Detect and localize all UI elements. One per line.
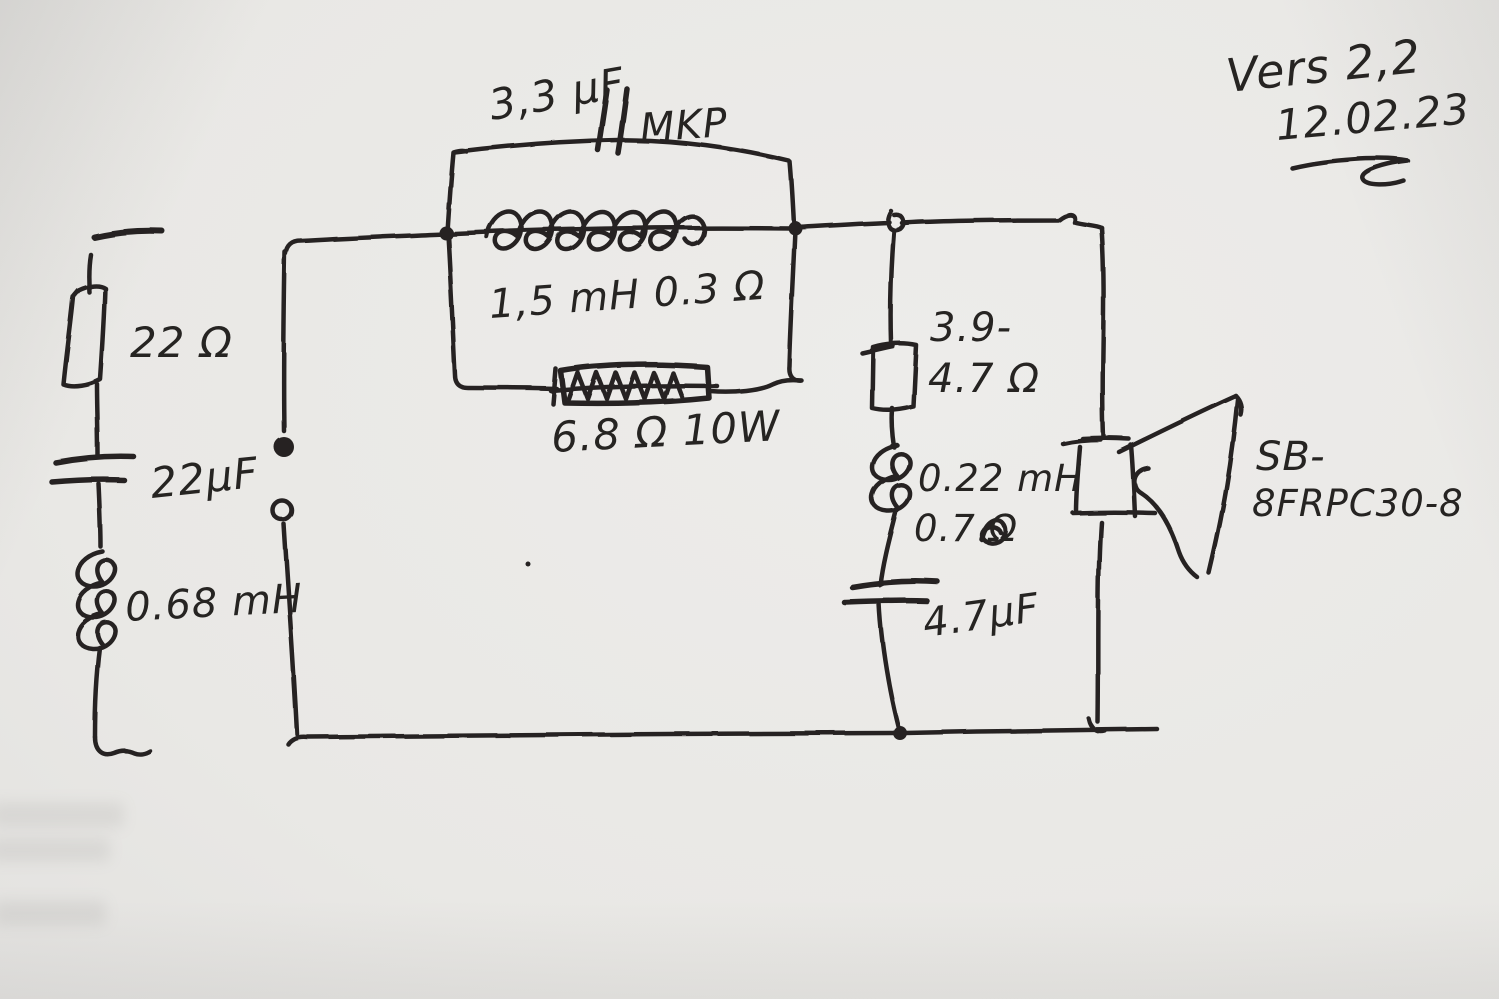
speaker-cone [1134,468,1197,577]
top-rail-wire [797,222,889,227]
speaker-box [1083,438,1129,439]
top-rail-wire [286,234,444,254]
schematic-svg: Vers 2,2 12.02.23 3,3 µF MKP 1,5 mH 0.3 … [0,0,1499,999]
speaker-wire [1102,228,1104,437]
capacitor-type-label: MKP [638,100,729,152]
series-inductor-coil [487,212,704,249]
shunt-wire [879,603,899,730]
shunt-capacitor-symbol [852,581,938,587]
notch-bottom-hook [95,737,150,754]
paper-bleedthrough [0,838,110,862]
notch-capacitor-symbol [52,480,124,482]
shunt-capacitor-symbol [844,601,927,602]
notch-resistor-label: 22 Ω [130,318,233,367]
bypass-loop-left-edge [447,150,466,232]
shunt-resistor-symbol [872,343,916,409]
notch-resistor-symbol [63,286,105,386]
notch-wire [99,484,101,547]
title-underline-squiggle [1292,159,1408,185]
speaker-branch [1063,228,1242,732]
shunt-resistor-label: 3.9- [930,305,1012,351]
speaker-box [1073,512,1155,513]
shunt-resistor-label: 4.7 Ω [928,356,1040,402]
paper-sheet: Vers 2,2 12.02.23 3,3 µF MKP 1,5 mH 0.3 … [0,0,1499,999]
input-terminal-minus [273,501,292,520]
speaker-wire [1098,522,1101,722]
shunt-inductor-coil [872,445,909,511]
series-inductor-label: 1,5 mH 0.3 Ω [487,263,767,328]
notch-inductor-label: 0.68 mH [124,576,304,631]
shunt-wire [880,507,897,585]
paper-bleedthrough [0,802,124,828]
top-rail-wire [902,215,1102,228]
notch-inductor-coil [78,552,115,649]
damping-resistor-lead [551,386,717,391]
series-capacitor-label: 3,3 µF [485,58,628,130]
damping-resistor-label: 6.8 Ω 10W [550,401,782,462]
shunt-capacitor-label: 4.7µF [920,585,1042,647]
speaker-cone [1119,396,1236,452]
stray-ink-dot [526,562,531,567]
notch-top-bar [94,231,162,237]
input-wire [284,524,297,734]
paper-bleedthrough [0,900,106,926]
damping-resistor-lead [553,369,556,404]
notch-capacitor-symbol [56,457,134,463]
notch-capacitor-label: 22µF [148,448,261,508]
input-wire [284,252,285,431]
input-section [273,234,445,734]
series-cell [439,89,802,404]
driver-label: SB- [1256,434,1326,480]
driver-label: 8FRPC30-8 [1252,482,1464,525]
bypass-loop-right-edge [790,162,794,225]
bypass-loop-right-edge [789,230,801,380]
input-terminal-plus [274,437,294,457]
bottom-rail-wire [288,733,895,744]
speaker-cone [1209,400,1238,573]
bypass-loop-bottom-edge [710,380,800,392]
shunt-inductor-label: 0.22 mH [918,457,1083,500]
input-notch-branch [52,231,162,754]
notch-wire [97,384,98,456]
shunt-wire [892,408,894,447]
bottom-rail-wire [905,729,1157,733]
shunt-wire [891,231,894,342]
notch-wire [95,648,100,737]
top-rail-wire [444,228,793,234]
shunt-inductor-dcr-label: 0.7 Ω [914,507,1018,550]
